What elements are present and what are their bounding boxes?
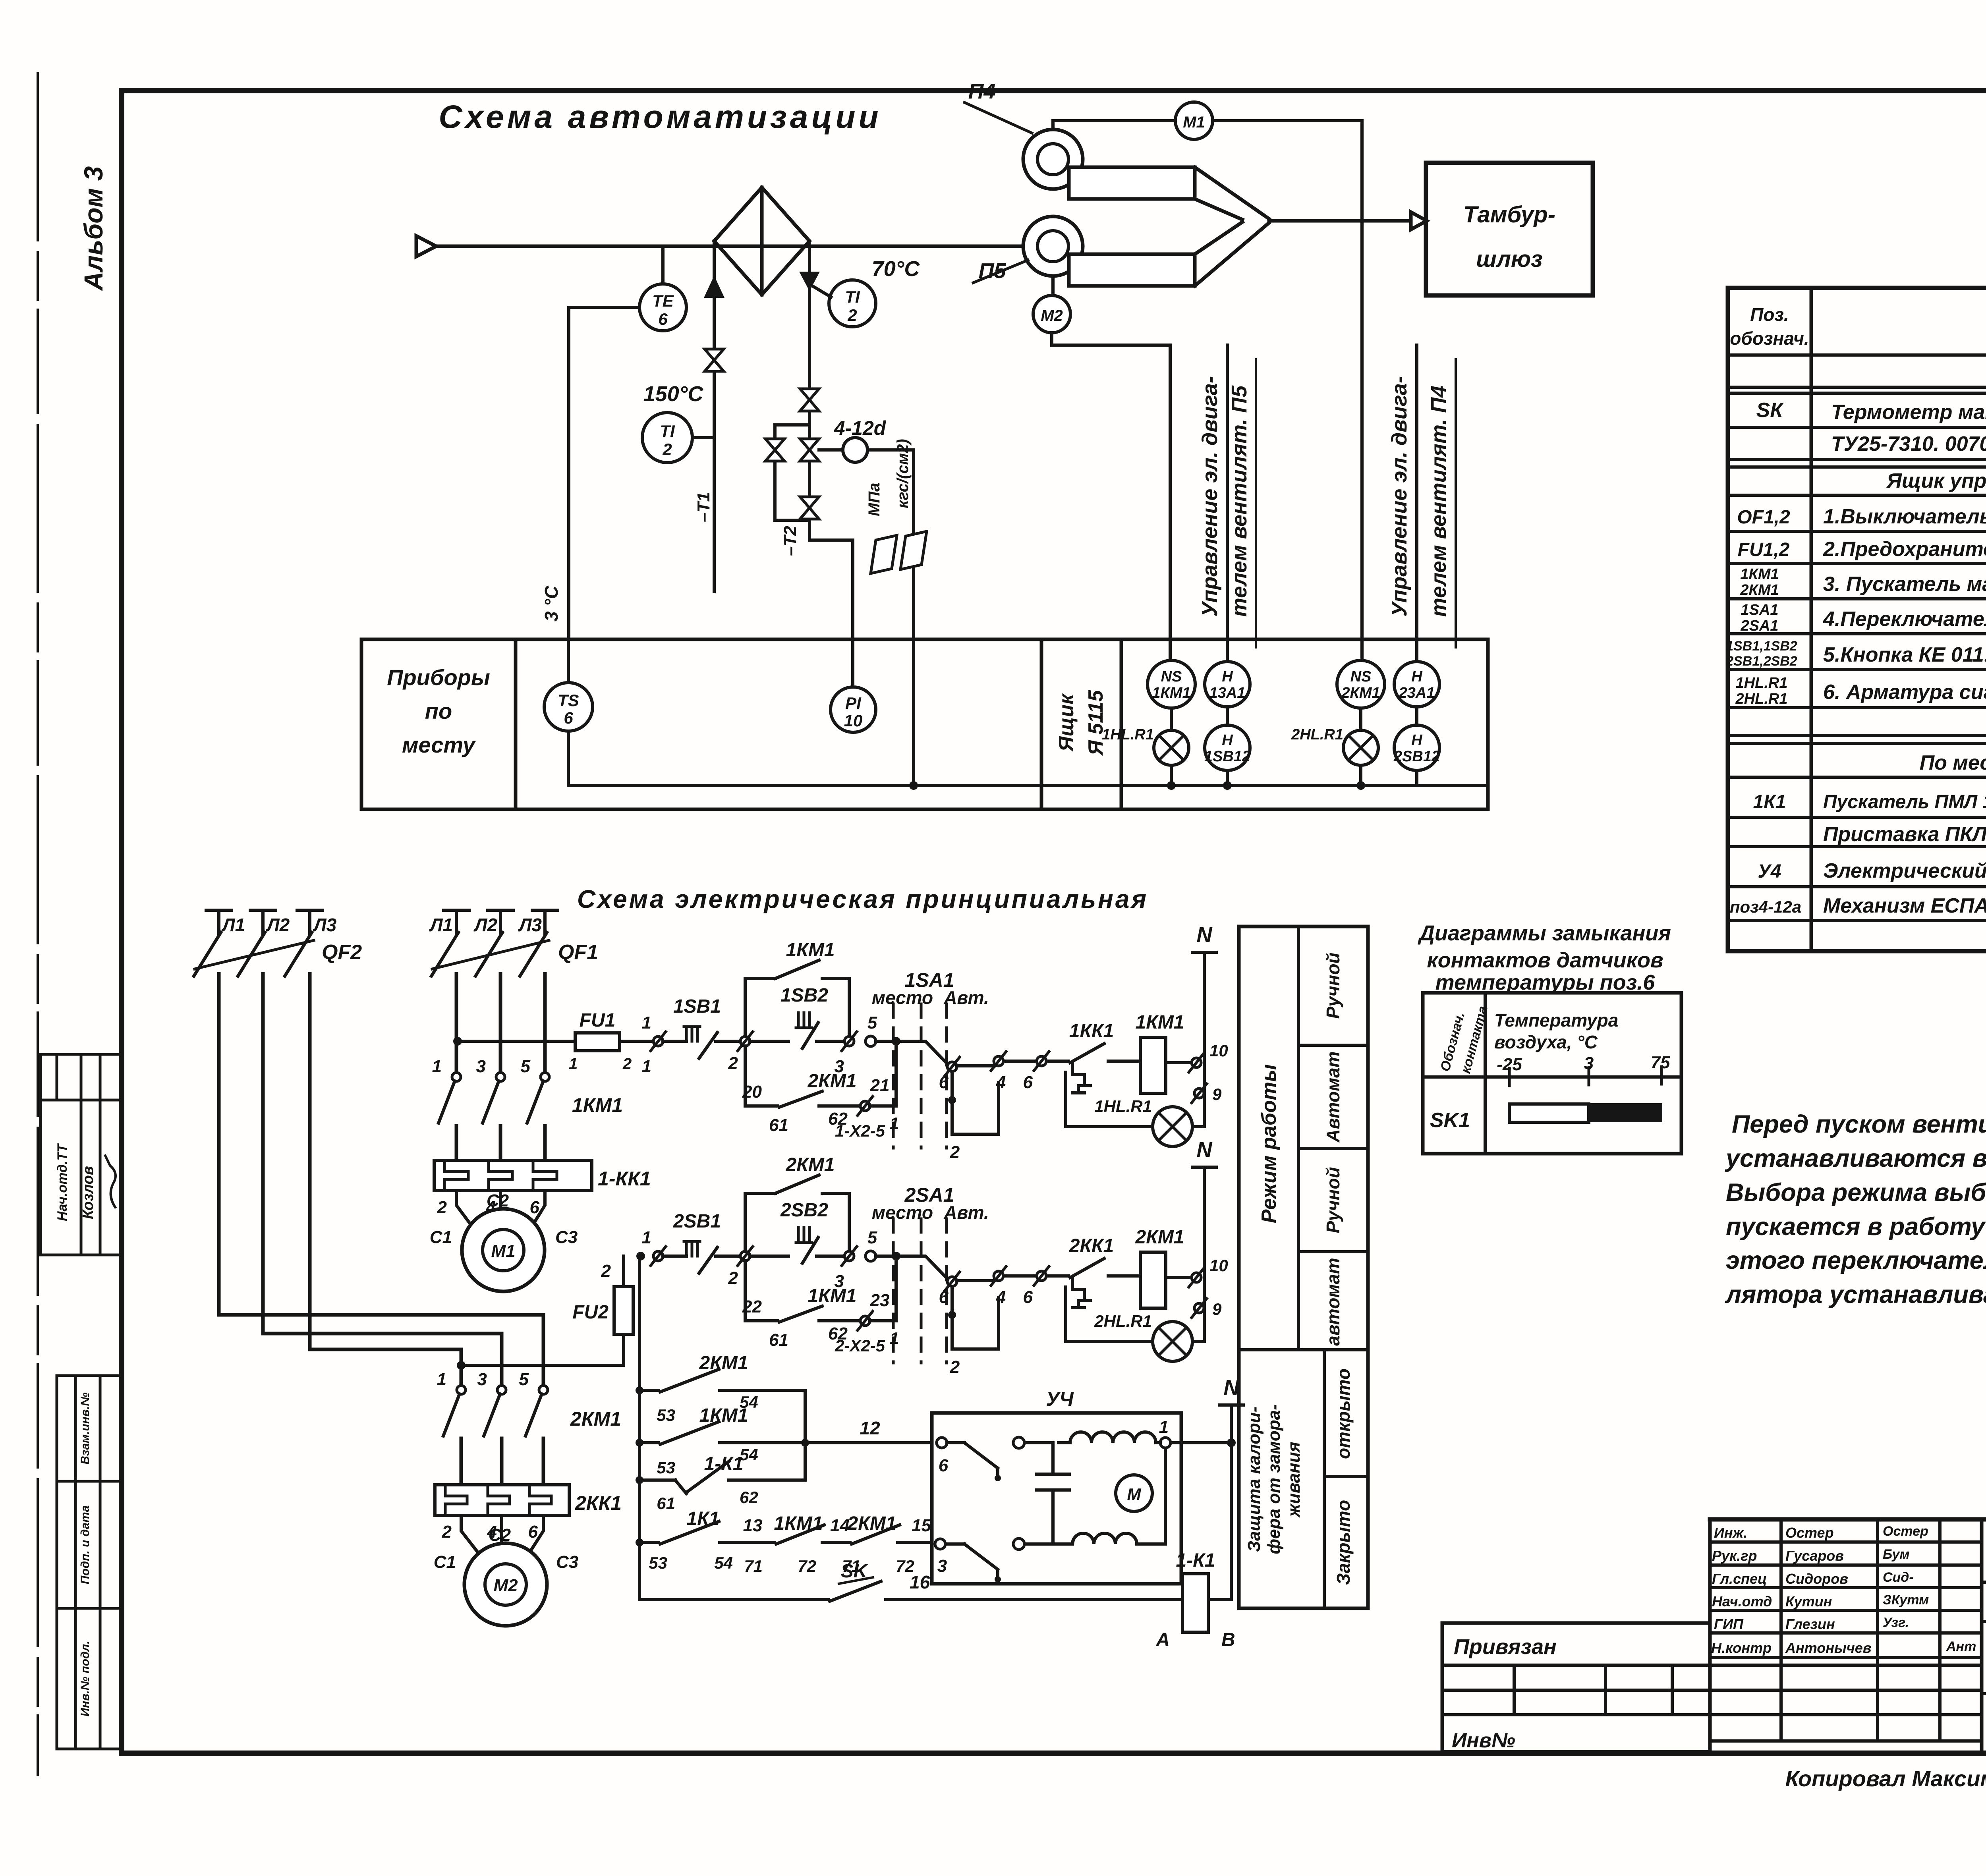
svg-text:Тамбур-: Тамбур- bbox=[1463, 202, 1555, 228]
svg-text:14: 14 bbox=[830, 1516, 850, 1535]
svg-text:Сид-: Сид- bbox=[1883, 1570, 1914, 1585]
svg-text:TI: TI bbox=[845, 288, 860, 306]
svg-text:1: 1 bbox=[432, 1057, 442, 1076]
svg-text:2-Х2-5: 2-Х2-5 bbox=[835, 1336, 885, 1355]
svg-text:2HL.R1: 2HL.R1 bbox=[1094, 1312, 1152, 1330]
svg-text:6. Арматура сигнальная: 6. Арматура сигнальная bbox=[1823, 681, 1986, 704]
svg-text:QF1: QF1 bbox=[558, 941, 598, 964]
svg-text:Диаграммы замыкания: Диаграммы замыкания bbox=[1418, 921, 1671, 945]
svg-text:Авт.: Авт. bbox=[943, 987, 989, 1008]
svg-text:Управление эл. двига-: Управление эл. двига- bbox=[1198, 376, 1222, 617]
svg-text:Привязан: Привязан bbox=[1454, 1635, 1557, 1659]
svg-text:М1: М1 bbox=[491, 1241, 515, 1261]
svg-text:2КМ1: 2КМ1 bbox=[699, 1353, 748, 1374]
svg-text:Н: Н bbox=[1222, 668, 1233, 685]
svg-text:2КМ1: 2КМ1 bbox=[1341, 685, 1380, 701]
svg-text:1КМ1: 1КМ1 bbox=[572, 1094, 623, 1116]
svg-text:2: 2 bbox=[662, 440, 672, 459]
svg-text:2: 2 bbox=[442, 1522, 452, 1542]
svg-text:1НL.R1: 1НL.R1 bbox=[1736, 675, 1788, 691]
svg-text:1КМ1: 1КМ1 bbox=[1740, 566, 1779, 583]
svg-text:61: 61 bbox=[769, 1116, 788, 1135]
svg-text:1SB1: 1SB1 bbox=[673, 996, 721, 1017]
svg-text:6: 6 bbox=[528, 1522, 538, 1542]
svg-text:61: 61 bbox=[657, 1494, 675, 1513]
svg-text:Антонычев: Антонычев bbox=[1785, 1640, 1872, 1656]
svg-text:9: 9 bbox=[1212, 1085, 1222, 1104]
svg-text:Инв.№ подл.: Инв.№ подл. bbox=[79, 1641, 92, 1716]
svg-text:61: 61 bbox=[769, 1330, 788, 1350]
svg-text:по: по bbox=[425, 699, 452, 724]
svg-text:Н: Н bbox=[1411, 732, 1423, 749]
svg-text:1КМ1: 1КМ1 bbox=[808, 1285, 857, 1307]
svg-text:2: 2 bbox=[728, 1268, 738, 1288]
svg-text:SК: SК bbox=[1756, 399, 1784, 422]
svg-text:5: 5 bbox=[867, 1228, 877, 1247]
svg-text:По месту: По месту bbox=[1920, 751, 1986, 774]
svg-text:М1: М1 bbox=[1183, 114, 1205, 131]
svg-text:воздуха, °С: воздуха, °С bbox=[1494, 1032, 1598, 1052]
svg-text:Электрический исполнительный: Электрический исполнительный bbox=[1823, 859, 1986, 882]
svg-text:автомат: автомат bbox=[1323, 1258, 1343, 1346]
svg-text:2SB12: 2SB12 bbox=[1393, 748, 1440, 765]
svg-text:4: 4 bbox=[996, 1073, 1006, 1092]
svg-text:1-К1: 1-К1 bbox=[1176, 1550, 1215, 1571]
svg-text:2КМ1: 2КМ1 bbox=[1740, 582, 1779, 598]
svg-text:1HL.R1: 1HL.R1 bbox=[1102, 726, 1154, 743]
svg-text:ТУ25-7310. 0070-87: ТУ25-7310. 0070-87 bbox=[1831, 432, 1986, 455]
svg-text:Л3: Л3 bbox=[313, 915, 337, 935]
svg-text:Взам.инв.№: Взам.инв.№ bbox=[79, 1392, 92, 1464]
svg-text:23: 23 bbox=[870, 1291, 890, 1310]
svg-text:2SВ1,2SВ2: 2SВ1,2SВ2 bbox=[1725, 654, 1797, 669]
svg-text:1: 1 bbox=[642, 1057, 651, 1076]
svg-text:4.Переключатель ПКУЗ: 4.Переключатель ПКУЗ bbox=[1823, 608, 1986, 631]
svg-text:22: 22 bbox=[742, 1297, 762, 1316]
svg-text:С1: С1 bbox=[430, 1228, 452, 1247]
svg-text:температуры поз.6: температуры поз.6 bbox=[1435, 971, 1656, 994]
svg-text:2: 2 bbox=[728, 1054, 738, 1073]
svg-text:открыто: открыто bbox=[1333, 1368, 1354, 1459]
svg-text:53: 53 bbox=[649, 1554, 667, 1572]
svg-text:Схема автоматизации: Схема автоматизации bbox=[439, 99, 881, 135]
svg-text:72: 72 bbox=[798, 1557, 816, 1575]
svg-text:Закрыто: Закрыто bbox=[1333, 1500, 1354, 1585]
svg-text:Инв№: Инв№ bbox=[1452, 1729, 1515, 1752]
svg-text:QF2: QF2 bbox=[322, 941, 362, 964]
svg-text:живания: живания bbox=[1284, 1442, 1304, 1517]
svg-text:10: 10 bbox=[844, 711, 863, 730]
svg-text:N: N bbox=[1197, 1138, 1213, 1162]
svg-text:Л1: Л1 bbox=[221, 915, 245, 935]
svg-text:Подп. и дата: Подп. и дата bbox=[79, 1505, 92, 1585]
svg-text:Схема электрическая принципи: Схема электрическая принципиальная bbox=[577, 885, 1148, 913]
svg-text:6: 6 bbox=[1023, 1073, 1033, 1092]
svg-text:TE: TE bbox=[652, 291, 674, 310]
svg-text:М: М bbox=[1127, 1485, 1142, 1504]
svg-text:FU1,2: FU1,2 bbox=[1738, 539, 1790, 560]
svg-text:1-КК1: 1-КК1 bbox=[598, 1168, 651, 1190]
svg-text:2SА1: 2SА1 bbox=[1740, 618, 1778, 634]
svg-text:1КМ1: 1КМ1 bbox=[786, 940, 835, 961]
svg-text:1: 1 bbox=[642, 1228, 651, 1247]
svg-text:Автомат: Автомат bbox=[1323, 1051, 1343, 1143]
svg-text:3. Пускатель магнитный ПМЛ: 3. Пускатель магнитный ПМЛ bbox=[1823, 573, 1986, 596]
svg-text:Глезин: Глезин bbox=[1785, 1616, 1835, 1632]
svg-text:2: 2 bbox=[437, 1198, 447, 1217]
svg-text:10: 10 bbox=[1209, 1256, 1228, 1275]
svg-text:Козлов: Козлов bbox=[80, 1166, 97, 1219]
svg-text:2НL.R1: 2НL.R1 bbox=[1735, 691, 1788, 707]
svg-text:1-К1: 1-К1 bbox=[704, 1453, 744, 1475]
svg-text:Термометр манометрический ТКП-: Термометр манометрический ТКП-100ЭК bbox=[1831, 401, 1986, 424]
svg-text:место: место bbox=[872, 987, 933, 1008]
svg-text:Ручной: Ручной bbox=[1323, 952, 1343, 1019]
svg-text:МПа: МПа bbox=[865, 483, 883, 516]
svg-text:Приборы: Приборы bbox=[387, 665, 490, 690]
svg-text:УЧ: УЧ bbox=[1046, 1388, 1074, 1410]
svg-text:В: В bbox=[1221, 1629, 1235, 1650]
svg-text:2КК1: 2КК1 bbox=[1069, 1235, 1114, 1256]
svg-text:5: 5 bbox=[521, 1057, 531, 1076]
svg-text:1К1: 1К1 bbox=[1753, 791, 1786, 813]
svg-text:6: 6 bbox=[658, 310, 668, 328]
svg-text:Гусаров: Гусаров bbox=[1785, 1548, 1844, 1564]
svg-text:2: 2 bbox=[847, 306, 857, 324]
svg-text:2КМ1: 2КМ1 bbox=[570, 1408, 621, 1430]
svg-text:4-12d: 4-12d bbox=[834, 417, 887, 439]
svg-text:TS: TS bbox=[558, 691, 579, 710]
svg-text:6: 6 bbox=[939, 1073, 949, 1092]
svg-text:Я 5115: Я 5115 bbox=[1084, 690, 1107, 756]
svg-text:2КМ1: 2КМ1 bbox=[808, 1071, 857, 1092]
svg-text:кгс/(см2): кгс/(см2) bbox=[894, 439, 912, 508]
svg-text:Гл.спец: Гл.спец bbox=[1712, 1571, 1767, 1587]
svg-text:Авт.: Авт. bbox=[943, 1202, 989, 1223]
svg-text:1SА1: 1SА1 bbox=[1741, 602, 1778, 618]
svg-text:П4: П4 bbox=[968, 79, 996, 103]
svg-text:6: 6 bbox=[530, 1198, 540, 1217]
svg-text:М2: М2 bbox=[493, 1576, 518, 1595]
svg-text:месту: месту bbox=[402, 732, 476, 757]
svg-text:23А1: 23А1 bbox=[1399, 685, 1435, 701]
svg-text:Ручной: Ручной bbox=[1323, 1167, 1343, 1233]
svg-text:устанавливаются в положении „: устанавливаются в положении „откл." Пере… bbox=[1725, 1145, 1986, 1172]
svg-text:поз4-12а: поз4-12а bbox=[1730, 897, 1801, 916]
svg-text:PI: PI bbox=[845, 694, 862, 712]
svg-text:У4: У4 bbox=[1758, 861, 1781, 882]
svg-text:Нач.отд: Нач.отд bbox=[1712, 1593, 1772, 1610]
svg-text:2КМ1: 2КМ1 bbox=[786, 1154, 835, 1175]
svg-text:6: 6 bbox=[939, 1456, 949, 1475]
svg-text:NS: NS bbox=[1161, 668, 1182, 685]
svg-text:Сидоров: Сидоров bbox=[1785, 1571, 1848, 1587]
svg-text:SK1: SK1 bbox=[1430, 1109, 1470, 1132]
svg-text:150°С: 150°С bbox=[643, 382, 704, 406]
svg-text:Остер: Остер bbox=[1785, 1525, 1834, 1541]
svg-text:Н.контр: Н.контр bbox=[1711, 1640, 1772, 1656]
svg-text:2HL.R1: 2HL.R1 bbox=[1291, 726, 1343, 743]
svg-text:–Т1: –Т1 bbox=[694, 492, 713, 522]
svg-text:Механизм ЕСПА-02-ПВ: Механизм ЕСПА-02-ПВ bbox=[1823, 894, 1986, 917]
svg-text:С3: С3 bbox=[555, 1228, 578, 1247]
svg-text:2SB2: 2SB2 bbox=[780, 1200, 828, 1221]
svg-text:5: 5 bbox=[867, 1013, 877, 1033]
svg-text:1-Х2-5: 1-Х2-5 bbox=[835, 1121, 885, 1140]
svg-text:ГИП: ГИП bbox=[1714, 1616, 1744, 1632]
svg-text:Копировал Максимова: Копировал Максимова bbox=[1785, 1766, 1986, 1791]
svg-text:6: 6 bbox=[1023, 1287, 1033, 1307]
svg-text:2КМ1: 2КМ1 bbox=[1135, 1227, 1184, 1248]
svg-text:5: 5 bbox=[519, 1370, 529, 1389]
svg-text:53: 53 bbox=[657, 1458, 675, 1477]
svg-text:пускается в работу с помощью: пускается в работу с помощью кнопочного … bbox=[1726, 1213, 1986, 1241]
svg-text:С3: С3 bbox=[556, 1552, 578, 1572]
svg-text:Режим работы: Режим работы bbox=[1258, 1064, 1281, 1224]
svg-text:Н: Н bbox=[1411, 668, 1423, 685]
svg-text:53: 53 bbox=[657, 1406, 675, 1424]
svg-text:М2: М2 bbox=[1041, 307, 1063, 324]
svg-text:1КМ1: 1КМ1 bbox=[774, 1513, 823, 1534]
svg-text:С1: С1 bbox=[434, 1552, 456, 1572]
svg-text:1: 1 bbox=[890, 1329, 899, 1347]
svg-text:10: 10 bbox=[1209, 1041, 1228, 1060]
svg-text:1КК1: 1КК1 bbox=[1069, 1021, 1114, 1042]
svg-text:1HL.R1: 1HL.R1 bbox=[1094, 1097, 1152, 1116]
svg-text:2: 2 bbox=[950, 1143, 960, 1162]
svg-text:Поз.: Поз. bbox=[1750, 304, 1789, 325]
svg-text:4: 4 bbox=[996, 1287, 1006, 1307]
svg-text:Нач.отд.ТТ: Нач.отд.ТТ bbox=[55, 1143, 70, 1221]
svg-text:FU1: FU1 bbox=[580, 1010, 616, 1031]
svg-text:TI: TI bbox=[660, 422, 675, 440]
svg-text:70°С: 70°С bbox=[872, 257, 920, 281]
svg-text:Л1: Л1 bbox=[429, 915, 453, 935]
svg-text:NS: NS bbox=[1350, 668, 1372, 685]
svg-text:3: 3 bbox=[477, 1370, 487, 1389]
svg-text:15: 15 bbox=[912, 1516, 931, 1535]
svg-text:Управление эл. двига-: Управление эл. двига- bbox=[1387, 376, 1411, 617]
svg-text:Л3: Л3 bbox=[518, 915, 542, 935]
svg-text:Ант: Ант bbox=[1946, 1639, 1976, 1654]
svg-text:1К1: 1К1 bbox=[687, 1508, 720, 1529]
svg-text:лятора устанавливается в пол: лятора устанавливается в положение „резе… bbox=[1725, 1281, 1986, 1309]
svg-text:1SB12: 1SB12 bbox=[1204, 748, 1250, 765]
svg-text:1.Выключатель АЕ2026 - 10МУ: 1.Выключатель АЕ2026 - 10МУЗ bbox=[1823, 505, 1986, 528]
svg-text:1: 1 bbox=[437, 1370, 446, 1389]
svg-text:–Т2: –Т2 bbox=[780, 526, 800, 556]
svg-text:телем вентилят. П5: телем вентилят. П5 bbox=[1227, 385, 1251, 617]
svg-text:фера от замора-: фера от замора- bbox=[1264, 1404, 1284, 1554]
svg-text:2КК1: 2КК1 bbox=[575, 1492, 622, 1514]
svg-text:Температура: Температура bbox=[1494, 1010, 1618, 1031]
svg-text:1КМ1: 1КМ1 bbox=[1152, 685, 1190, 701]
svg-text:2КМ1: 2КМ1 bbox=[847, 1513, 896, 1534]
svg-text:Инж.: Инж. bbox=[1714, 1525, 1747, 1541]
svg-text:2.Предохранитель ПРС-6ЛУЗ: 2.Предохранитель ПРС-6ЛУЗ bbox=[1823, 538, 1986, 561]
svg-text:N: N bbox=[1197, 923, 1213, 947]
svg-text:Рук.гр: Рук.гр bbox=[1712, 1548, 1757, 1564]
svg-text:13: 13 bbox=[743, 1516, 763, 1535]
svg-text:20: 20 bbox=[742, 1082, 762, 1102]
svg-text:2: 2 bbox=[601, 1261, 611, 1281]
svg-text:Л2: Л2 bbox=[266, 915, 290, 935]
svg-text:телем вентилят. П4: телем вентилят. П4 bbox=[1427, 386, 1451, 617]
svg-text:Альбом 3: Альбом 3 bbox=[79, 166, 108, 291]
svg-text:Л2: Л2 bbox=[473, 915, 498, 935]
svg-text:Кутин: Кутин bbox=[1785, 1593, 1832, 1610]
svg-text:место: место bbox=[872, 1202, 933, 1223]
svg-text:71: 71 bbox=[744, 1557, 763, 1575]
svg-text:Ящик: Ящик bbox=[1055, 693, 1078, 752]
svg-text:Узг.: Узг. bbox=[1883, 1615, 1909, 1630]
svg-text:FU2: FU2 bbox=[572, 1302, 609, 1323]
svg-text:Бум: Бум bbox=[1883, 1547, 1910, 1562]
svg-text:62: 62 bbox=[740, 1488, 758, 1507]
svg-text:1SВ1,1SВ2: 1SВ1,1SВ2 bbox=[1726, 639, 1797, 654]
svg-text:16: 16 bbox=[910, 1572, 930, 1592]
svg-text:3: 3 bbox=[476, 1057, 486, 1076]
svg-text:Приставка ПКЛ 2204 ТУ16-523.55: Приставка ПКЛ 2204 ТУ16-523.554-78 bbox=[1823, 823, 1986, 846]
svg-text:1КМ1: 1КМ1 bbox=[1136, 1012, 1184, 1033]
svg-text:ЗКутм: ЗКутм bbox=[1883, 1592, 1929, 1608]
svg-text:1: 1 bbox=[1159, 1417, 1169, 1437]
svg-text:1: 1 bbox=[890, 1114, 899, 1133]
svg-text:Выбора режима выбирается рабоч: Выбора режима выбирается рабочий вентиля… bbox=[1726, 1179, 1986, 1206]
svg-text:А: А bbox=[1155, 1629, 1170, 1650]
svg-text:6: 6 bbox=[564, 708, 573, 727]
svg-text:3: 3 bbox=[937, 1556, 947, 1576]
svg-text:1КМ1: 1КМ1 bbox=[699, 1405, 748, 1426]
svg-text:54: 54 bbox=[714, 1554, 733, 1572]
svg-text:Защита калори-: Защита калори- bbox=[1244, 1407, 1264, 1552]
svg-text:Остер: Остер bbox=[1883, 1524, 1928, 1539]
svg-text:контактов датчиков: контактов датчиков bbox=[1427, 948, 1663, 972]
svg-text:2SB1: 2SB1 bbox=[673, 1211, 721, 1232]
svg-text:Перед пуском вентилятора кл: Перед пуском вентилятора ключи управлени… bbox=[1732, 1110, 1986, 1138]
svg-text:2: 2 bbox=[622, 1055, 632, 1073]
svg-text:Пускатель ПМЛ 111002 ~220В ТУ1: Пускатель ПМЛ 111002 ~220В ТУ16-644.001-… bbox=[1823, 791, 1986, 813]
svg-text:ОF1,2: ОF1,2 bbox=[1737, 507, 1790, 528]
svg-text:9: 9 bbox=[1212, 1300, 1222, 1318]
svg-text:Ящик управления Я 5/15: Ящик управления Я 5/15 „компл." bbox=[1886, 469, 1986, 492]
svg-text:3 °С: 3 °С bbox=[541, 585, 562, 621]
svg-text:Н: Н bbox=[1222, 732, 1233, 749]
svg-text:1: 1 bbox=[569, 1055, 578, 1073]
svg-text:5.Кнопка КЕ 011УЗ: 5.Кнопка КЕ 011УЗ bbox=[1823, 643, 1986, 666]
svg-text:21: 21 bbox=[870, 1076, 890, 1095]
svg-text:2: 2 bbox=[950, 1357, 960, 1377]
svg-text:1: 1 bbox=[642, 1013, 651, 1033]
svg-text:обознач.: обознач. bbox=[1730, 328, 1809, 349]
svg-text:этого переключатель выбора: этого переключатель выбора режима резерв… bbox=[1726, 1247, 1986, 1274]
svg-text:12: 12 bbox=[860, 1418, 880, 1438]
svg-text:6: 6 bbox=[939, 1287, 949, 1307]
svg-text:шлюз: шлюз bbox=[1476, 246, 1542, 272]
svg-text:13А1: 13А1 bbox=[1209, 685, 1246, 701]
svg-text:1SB2: 1SB2 bbox=[780, 985, 828, 1006]
